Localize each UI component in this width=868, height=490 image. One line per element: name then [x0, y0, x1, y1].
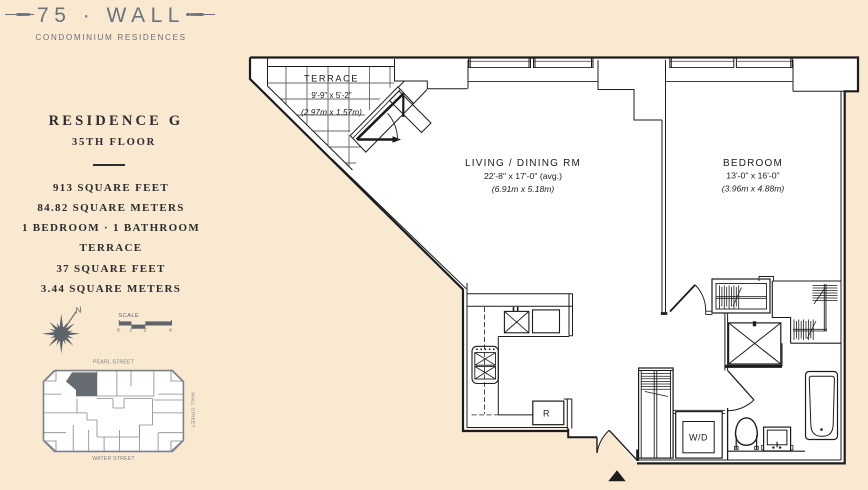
svg-text:(3.96m x 4.88m): (3.96m x 4.88m)	[722, 184, 785, 194]
svg-text:4': 4'	[169, 328, 173, 333]
svg-text:2': 2'	[144, 328, 148, 333]
svg-text:22'-8" x 17'-0" (avg.): 22'-8" x 17'-0" (avg.)	[484, 171, 562, 181]
svg-text:SCALE: SCALE	[119, 313, 140, 319]
svg-text:W/D: W/D	[689, 433, 708, 443]
svg-text:1': 1'	[130, 328, 134, 333]
svg-text:PEARL STREET: PEARL STREET	[93, 360, 135, 366]
svg-text:9'-9" x 5'-2": 9'-9" x 5'-2"	[311, 91, 351, 100]
svg-text:TERRACE: TERRACE	[304, 74, 359, 84]
svg-text:LIVING / DINING RM: LIVING / DINING RM	[465, 158, 581, 169]
svg-text:0': 0'	[117, 328, 121, 333]
svg-text:13'-0" x 16'-0": 13'-0" x 16'-0"	[726, 171, 779, 181]
svg-text:BEDROOM: BEDROOM	[723, 158, 783, 169]
svg-text:WATER STREET: WATER STREET	[92, 456, 135, 462]
svg-text:WALL STREET: WALL STREET	[190, 392, 196, 427]
svg-text:R: R	[543, 409, 550, 419]
svg-text:(6.91m x 5.18m): (6.91m x 5.18m)	[492, 184, 555, 194]
svg-text:(2.97m x 1.57m): (2.97m x 1.57m)	[301, 107, 362, 117]
svg-text:N: N	[74, 304, 83, 315]
